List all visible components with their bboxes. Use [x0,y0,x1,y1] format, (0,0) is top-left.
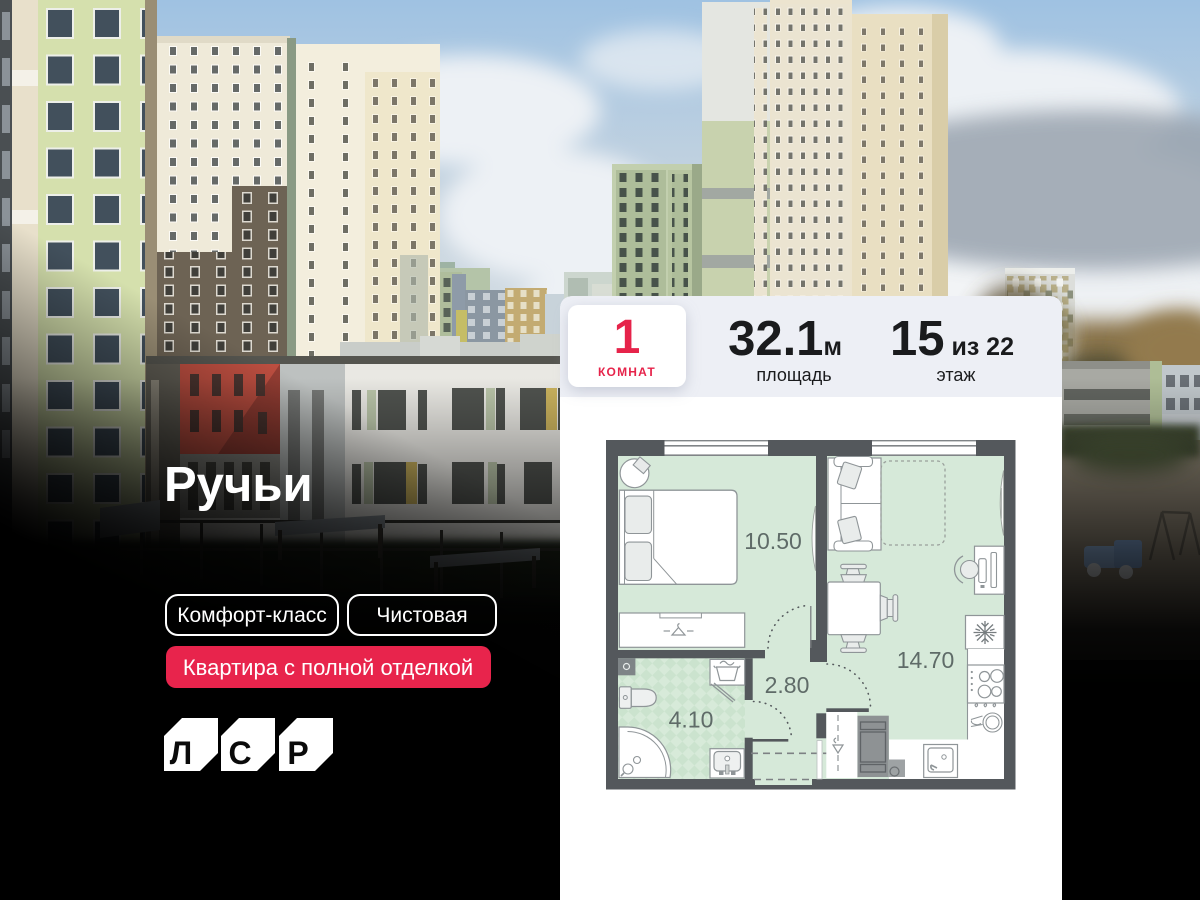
svg-text:4.10: 4.10 [669,707,714,733]
svg-text:1: 1 [614,311,641,364]
svg-text:Комфорт-класс: Комфорт-класс [177,604,327,627]
svg-text:10.50: 10.50 [744,528,802,554]
svg-text:Квартира с полной отделкой: Квартира с полной отделкой [183,655,473,680]
svg-text:КОМНАТ: КОМНАТ [598,365,656,379]
svg-text:Р: Р [287,735,308,771]
svg-text:Ручьи: Ручьи [164,458,313,512]
svg-text:14.70: 14.70 [897,647,955,673]
svg-text:площадь: площадь [756,365,831,385]
svg-text:2.80: 2.80 [765,672,810,698]
svg-text:С: С [228,735,251,771]
svg-text:Л: Л [170,735,192,771]
svg-text:этаж: этаж [937,365,976,385]
svg-text:Чистовая: Чистовая [376,604,467,627]
